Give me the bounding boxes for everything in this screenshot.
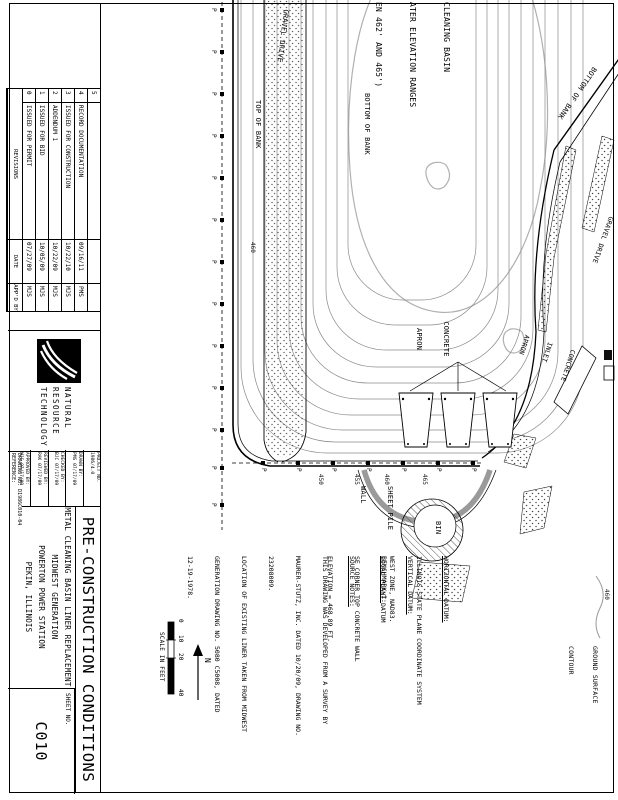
- nrt-logo-icon: [37, 339, 81, 383]
- field-row: PROJECT NO. 1986/4.0: [83, 450, 101, 506]
- survey-marker: [366, 461, 369, 464]
- field-row: CHECKED BY: BJC 07/17/09: [48, 450, 66, 506]
- sheet-no-value: C010: [32, 689, 50, 794]
- survey-marker: [220, 176, 223, 179]
- revisions-header: REVISIONS: [7, 89, 22, 240]
- survey-marker: [401, 461, 404, 464]
- rev-no: 3: [61, 89, 74, 103]
- survey-marker-label: P: [210, 466, 216, 470]
- survey-marker-label: P: [210, 386, 216, 390]
- drawing-viewport: CLEANING BASIN ATER ELEVATION RANGES EN …: [0, 0, 618, 800]
- survey-marker-label: P: [330, 468, 336, 472]
- rev-no: 4: [74, 89, 87, 103]
- date-header: DATE: [7, 240, 22, 284]
- drawing-info-fields: PROJECT NO. 1986/4.0 DRAWN BY: PMS 07/17…: [22, 450, 101, 507]
- survey-marker-label: P: [210, 8, 216, 12]
- survey-marker: [220, 302, 223, 305]
- rev-by: MJS: [35, 284, 48, 311]
- survey-marker: [220, 50, 223, 53]
- survey-marker: [220, 503, 223, 506]
- sheet-no-label: SHEET NO.: [64, 693, 71, 726]
- rev-date: 10/22/10: [61, 240, 74, 284]
- rev-date: 10/05/09: [35, 240, 48, 284]
- rev-by: MJS: [61, 284, 74, 311]
- revision-table: 5 4 RECORD DOCUMENTATION 09/16/11 PMS 3 …: [6, 88, 101, 312]
- survey-marker-label: P: [470, 468, 476, 472]
- reference-label: REFERENCE:: [9, 453, 15, 691]
- project-titles: METAL CLEANING BASIN LINER REPLACEMENT M…: [22, 506, 75, 688]
- survey-marker-label: P: [365, 468, 371, 472]
- survey-marker: [220, 218, 223, 221]
- rev-no: 2: [48, 89, 61, 103]
- appd-by-header: APP'D BY: [7, 284, 22, 311]
- rev-by: MJS: [48, 284, 61, 311]
- rev-date: [87, 240, 100, 284]
- field-row: DRAWN BY: PMS 07/17/09: [65, 450, 83, 506]
- survey-marker-label: P: [435, 468, 441, 472]
- survey-marker: [471, 461, 474, 464]
- rev-by: MJS: [22, 284, 35, 311]
- survey-marker: [220, 386, 223, 389]
- survey-marker-label: P: [260, 468, 266, 472]
- survey-marker: [220, 8, 223, 11]
- rev-desc: ADDENDUM 1: [48, 103, 61, 240]
- rev-desc: ISSUED FOR CONSTRUCTION: [61, 103, 74, 240]
- survey-marker: [220, 344, 223, 347]
- drawing-number-strip: DRAWING NO: D1986C010-04 REFERENCE:: [9, 450, 22, 691]
- survey-marker-label: P: [210, 428, 216, 432]
- survey-marker: [220, 466, 223, 469]
- rev-no: 5: [87, 89, 100, 103]
- rev-desc: ISSUED FOR BID: [35, 103, 48, 240]
- survey-marker-label: P: [210, 134, 216, 138]
- company-name: NATURAL RESOURCE TECHNOLOGY: [37, 387, 73, 447]
- survey-marker-label: P: [210, 260, 216, 264]
- survey-marker: [220, 260, 223, 263]
- rev-date: 10/22/09: [48, 240, 61, 284]
- survey-marker-label: P: [210, 50, 216, 54]
- survey-marker: [220, 134, 223, 137]
- rev-date: 09/16/11: [74, 240, 87, 284]
- drawing-sheet: CLEANING BASIN ATER ELEVATION RANGES EN …: [0, 0, 618, 800]
- drawing-number: DRAWING NO: D1986C010-04: [16, 453, 22, 691]
- survey-marker: [261, 461, 264, 464]
- rev-by: [87, 284, 100, 311]
- survey-marker: [331, 461, 334, 464]
- survey-marker: [220, 428, 223, 431]
- survey-marker: [296, 461, 299, 464]
- rev-no: 0: [22, 89, 35, 103]
- rev-desc: RECORD DOCUMENTATION: [74, 103, 87, 240]
- rev-desc: ISSUED FOR PERMIT: [22, 103, 35, 240]
- survey-marker: [436, 461, 439, 464]
- survey-marker-label: P: [210, 176, 216, 180]
- rev-desc: [87, 103, 100, 240]
- survey-marker-label: P: [210, 92, 216, 96]
- survey-marker-label: P: [210, 503, 216, 507]
- field-row: REVIEWED BY: RAK 07/17/09: [30, 450, 48, 506]
- company-logo-block: NATURAL RESOURCE TECHNOLOGY: [8, 330, 101, 452]
- rev-no: 1: [35, 89, 48, 103]
- sheet-title: PRE-CONSTRUCTION CONDITIONS: [76, 506, 101, 793]
- rev-date: 07/27/09: [22, 240, 35, 284]
- sheet-number-box: SHEET NO. C010: [8, 688, 75, 794]
- survey-marker-label: P: [400, 468, 406, 472]
- survey-marker: [220, 92, 223, 95]
- rev-by: PMS: [74, 284, 87, 311]
- survey-marker-label: P: [210, 302, 216, 306]
- survey-marker-label: P: [210, 344, 216, 348]
- survey-marker-label: P: [295, 468, 301, 472]
- survey-marker-label: P: [210, 218, 216, 222]
